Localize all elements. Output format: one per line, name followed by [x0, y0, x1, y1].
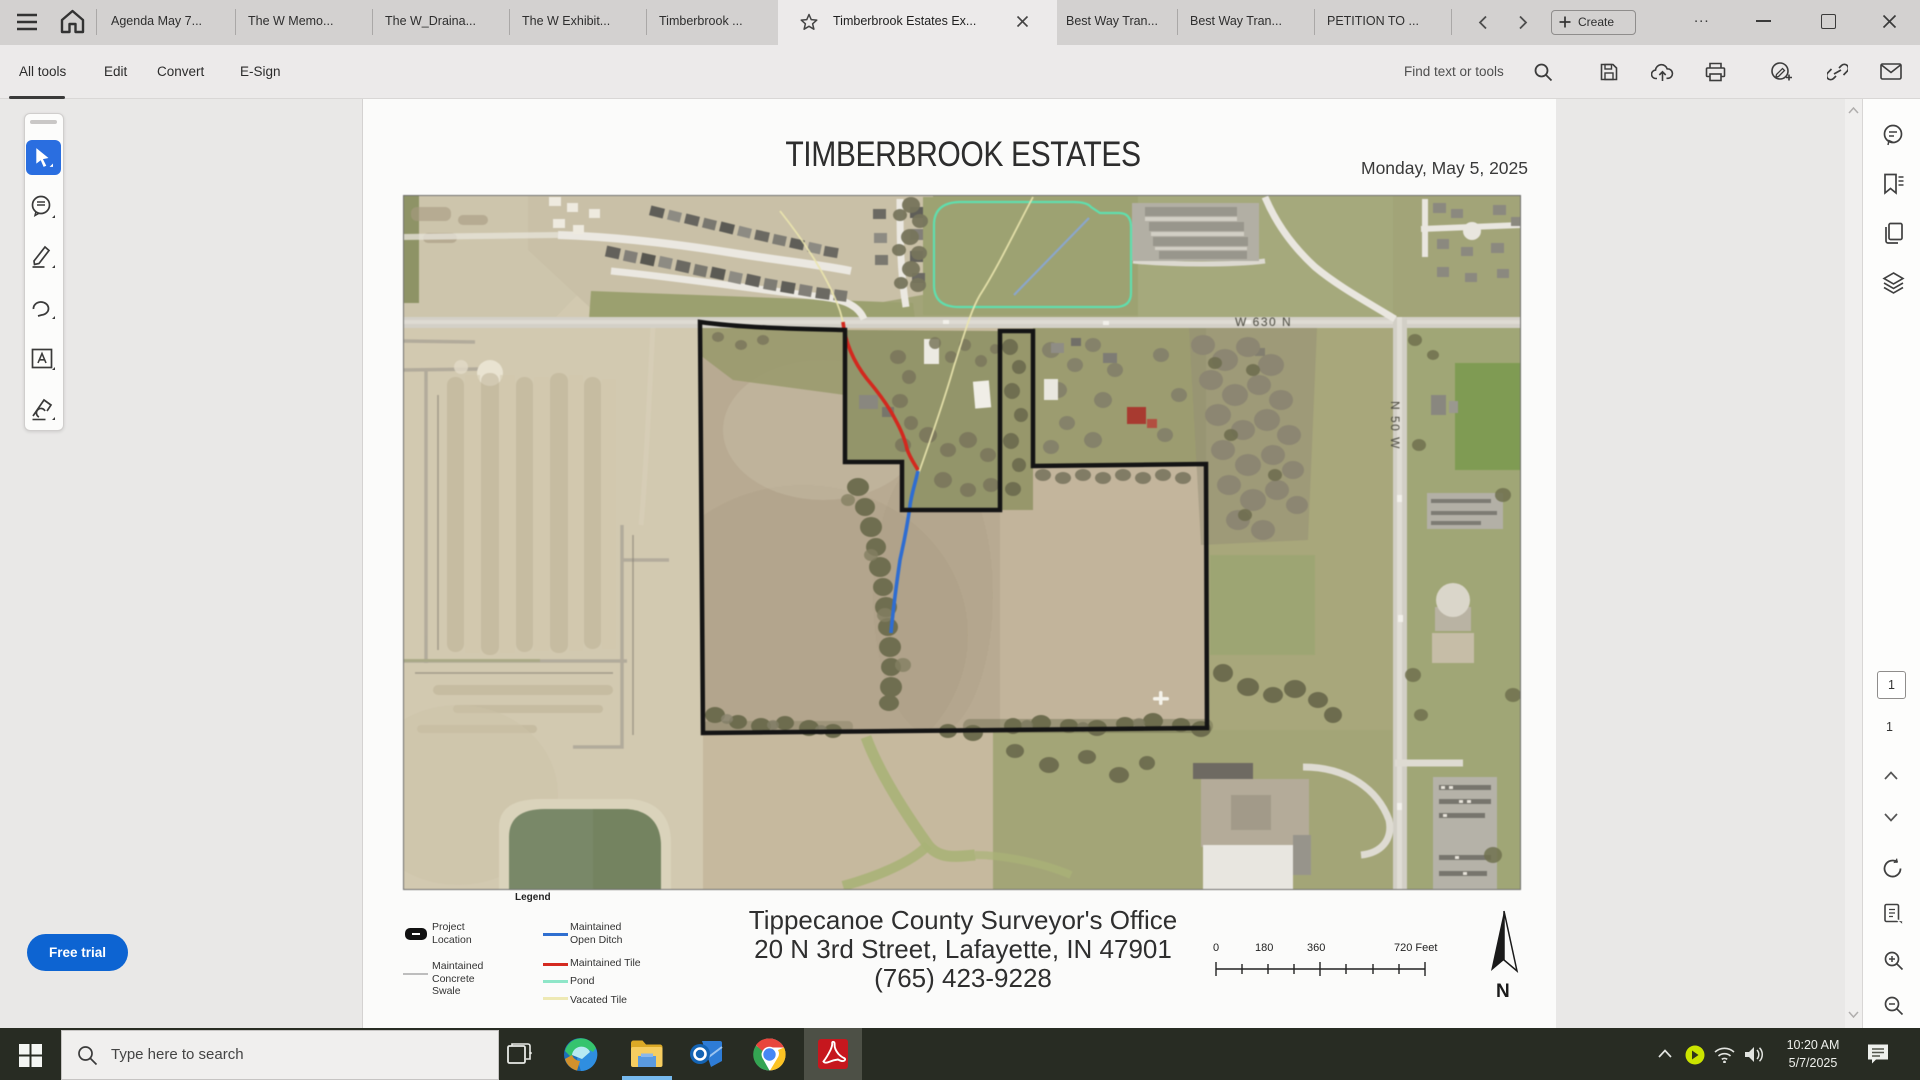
svg-text:N 50 W: N 50 W [1388, 401, 1402, 450]
svg-text:180: 180 [1255, 942, 1273, 954]
svg-text:720 Feet: 720 Feet [1394, 942, 1437, 954]
svg-text:0: 0 [1213, 942, 1219, 954]
svg-text:360: 360 [1307, 942, 1325, 954]
svg-text:W 630 N: W 630 N [1235, 315, 1292, 329]
svg-text:N: N [1496, 981, 1510, 1002]
